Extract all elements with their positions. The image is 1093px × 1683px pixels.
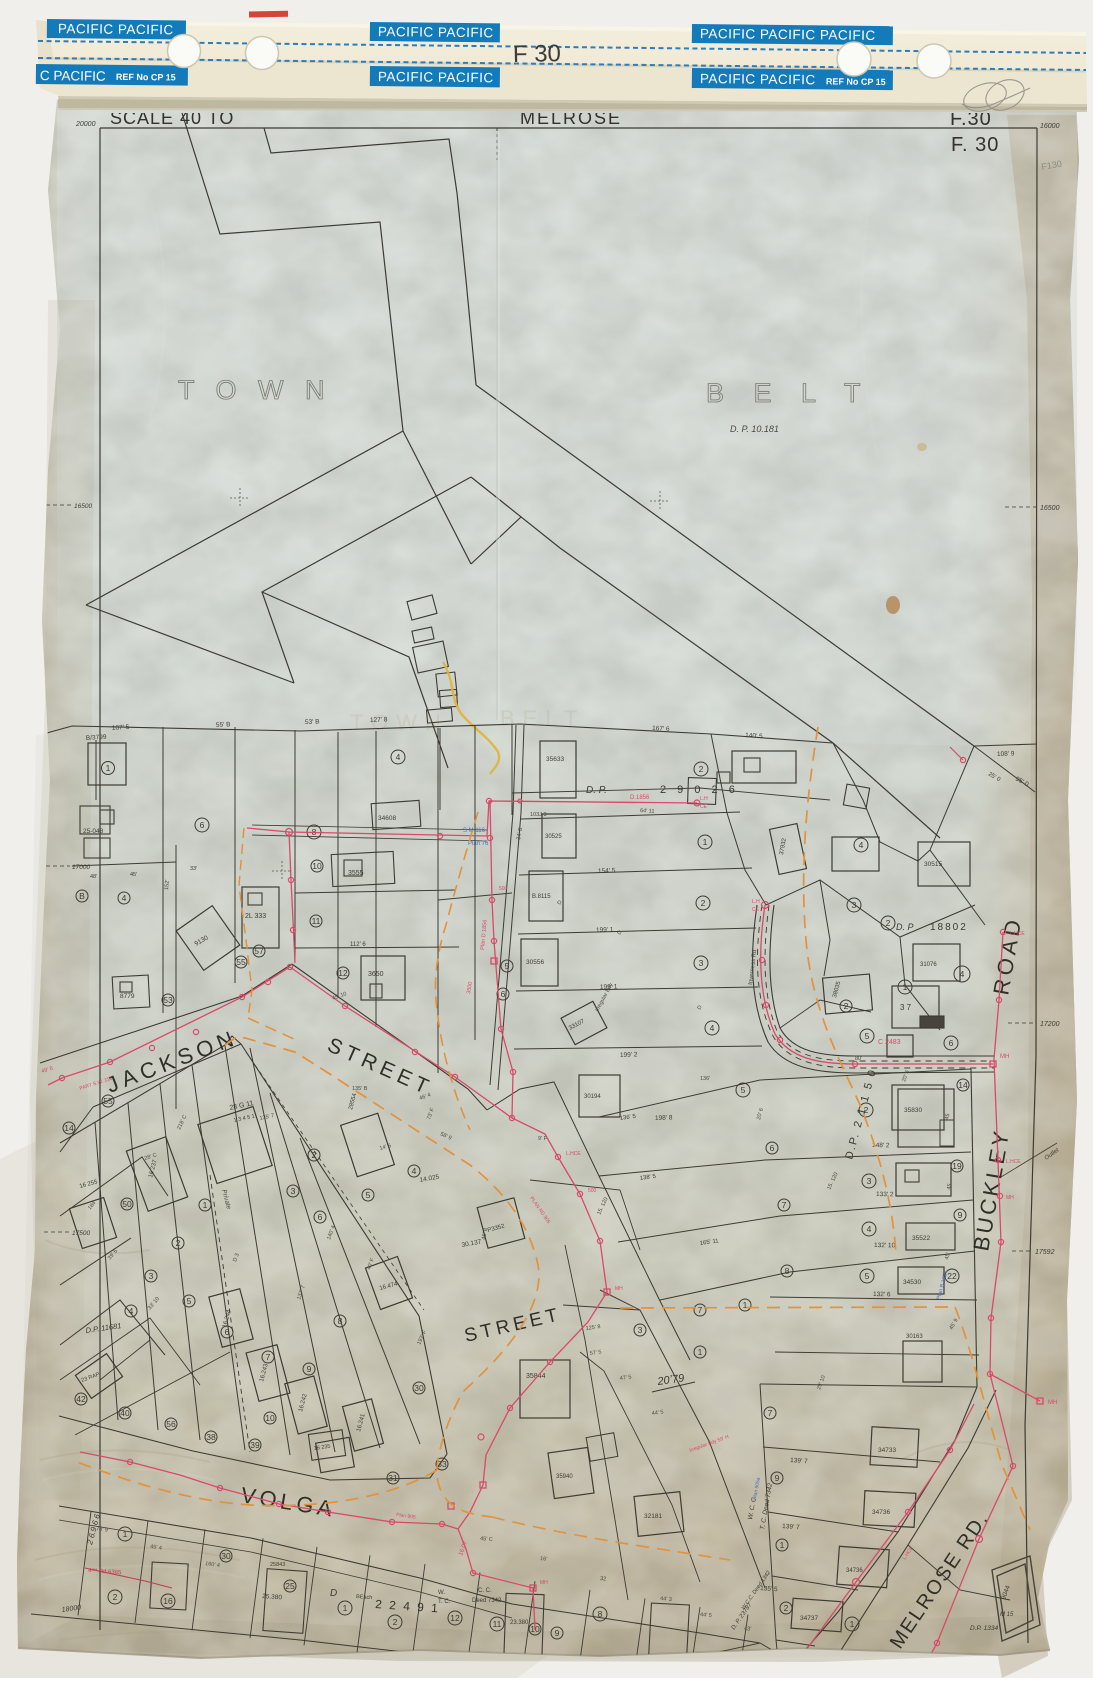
svg-text:5: 5 [865,1031,870,1041]
svg-text:3: 3 [149,1271,154,1281]
svg-text:T O W N: T O W N [178,375,332,405]
svg-text:132' 6: 132' 6 [873,1291,891,1298]
svg-text:D. P: D. P [896,922,914,932]
svg-text:8: 8 [338,1316,343,1326]
svg-text:PACIFIC PACIFIC: PACIFIC PACIFIC [378,69,494,85]
svg-text:8: 8 [598,1609,603,1619]
svg-text:B.8115: B.8115 [532,894,551,900]
svg-text:C PACIFIC: C PACIFIC [40,68,106,84]
svg-text:2: 2 [886,918,891,928]
svg-text:12: 12 [338,968,348,978]
svg-text:34733: 34733 [878,1447,896,1454]
svg-text:7: 7 [782,1200,787,1210]
svg-text:2: 2 [176,1238,181,1248]
svg-text:PACIFIC PACIFIC: PACIFIC PACIFIC [700,71,816,87]
svg-text:6: 6 [770,1143,775,1153]
svg-text:1: 1 [903,982,908,992]
svg-text:5: 5 [505,961,510,971]
svg-text:30194: 30194 [584,1094,601,1100]
svg-text:23.380: 23.380 [510,1620,529,1626]
svg-text:34736: 34736 [846,1568,863,1574]
svg-text:30163: 30163 [906,1334,923,1340]
svg-text:35830: 35830 [904,1107,922,1114]
svg-text:14: 14 [64,1123,74,1133]
svg-text:PACIFIC PACIFIC: PACIFIC PACIFIC [378,24,494,40]
svg-text:139' 7: 139' 7 [782,1523,800,1531]
svg-text:1: 1 [850,1619,855,1629]
svg-text:112' 6: 112' 6 [350,942,366,948]
svg-text:5: 5 [865,1271,870,1281]
svg-text:REF No CP 15: REF No CP 15 [826,76,886,87]
svg-text:167' 6: 167' 6 [652,725,670,733]
svg-text:16: 16 [163,1596,173,1606]
svg-text:2: 2 [864,1105,869,1115]
svg-text:139' 7: 139' 7 [790,1457,808,1465]
svg-text:F. 30: F. 30 [951,134,999,156]
svg-text:S M 116: S M 116 [463,828,486,834]
svg-text:64' 11: 64' 11 [640,808,655,815]
svg-text:1: 1 [780,1540,785,1550]
svg-text:1: 1 [343,1603,348,1613]
svg-text:L.HCE: L.HCE [1010,931,1025,937]
svg-text:35522: 35522 [912,1235,930,1242]
svg-text:11: 11 [312,916,321,926]
svg-text:9: 9 [307,1364,312,1374]
svg-text:4: 4 [859,840,864,850]
svg-text:4: 4 [396,752,401,762]
svg-text:6: 6 [318,1212,323,1222]
svg-text:16000: 16000 [1040,123,1060,130]
svg-text:11: 11 [493,1619,502,1629]
svg-text:17592: 17592 [1035,1249,1055,1256]
svg-text:1: 1 [106,763,111,773]
svg-text:12: 12 [450,1613,460,1623]
svg-text:L.H: L.H [700,796,708,802]
svg-text:3: 3 [699,958,704,968]
svg-text:7: 7 [768,1408,773,1418]
svg-text:500: 500 [588,1188,597,1194]
svg-text:3: 3 [867,1176,872,1186]
svg-text:1: 1 [743,1300,748,1310]
svg-text:4: 4 [960,969,965,979]
svg-text:4: 4 [122,893,127,903]
svg-text:REF No CP 15: REF No CP 15 [116,72,176,83]
svg-text:3555: 3555 [348,870,364,877]
svg-text:45' C: 45' C [480,1536,493,1543]
svg-text:35633: 35633 [546,756,564,763]
svg-text:2: 2 [113,1592,118,1602]
svg-text:B E L T: B E L T [706,378,872,408]
svg-text:MH: MH [1006,1195,1014,1201]
svg-text:10: 10 [312,861,322,871]
svg-text:5: 5 [741,1085,746,1095]
svg-text:B: B [79,891,85,901]
svg-text:16500: 16500 [1040,505,1060,512]
svg-text:2: 2 [393,1617,398,1627]
svg-text:500: 500 [499,886,508,892]
svg-text:L.HCE: L.HCE [1006,1159,1021,1165]
svg-text:14: 14 [958,1080,968,1090]
svg-text:38: 38 [206,1432,216,1442]
svg-text:5: 5 [187,1296,192,1306]
svg-text:C. C.: C. C. [478,1588,492,1594]
svg-text:4: 4 [710,1023,715,1033]
svg-text:2: 2 [312,1150,317,1160]
svg-text:25843: 25843 [270,1562,285,1568]
svg-text:B/3799: B/3799 [86,734,107,742]
svg-text:55' B: 55' B [216,721,231,729]
svg-text:133' 2: 133' 2 [876,1191,894,1198]
svg-text:19: 19 [952,1161,962,1171]
svg-text:32181: 32181 [644,1513,662,1520]
svg-text:5: 5 [366,1190,371,1200]
svg-text:4: 4 [129,1306,134,1316]
svg-text:PACIFIC PACIFIC: PACIFIC PACIFIC [58,21,174,37]
svg-text:W.: W. [438,1590,445,1596]
svg-text:43': 43' [744,1626,752,1633]
svg-text:2: 2 [844,1001,849,1011]
svg-text:20000: 20000 [75,121,96,128]
svg-text:39: 39 [250,1440,260,1450]
svg-text:3650: 3650 [368,971,384,978]
svg-text:9: 9 [775,1473,780,1483]
svg-text:132' 10: 132' 10 [874,1242,896,1249]
svg-text:2: 2 [784,1603,789,1613]
svg-text:6: 6 [949,1038,954,1048]
svg-text:135' B: 135' B [352,1086,368,1092]
svg-text:3: 3 [852,900,857,910]
svg-text:F 30: F 30 [513,40,561,68]
svg-text:1: 1 [698,1347,703,1357]
svg-text:136': 136' [700,1076,710,1082]
svg-text:MH: MH [615,1286,623,1292]
svg-text:BEach: BEach [356,1594,373,1601]
svg-text:3 7: 3 7 [900,1003,912,1012]
svg-text:9: 9 [958,1210,963,1220]
svg-text:L.HCE: L.HCE [566,1151,581,1157]
svg-text:8: 8 [785,1266,790,1276]
svg-text:198' 8: 198' 8 [655,1114,673,1122]
svg-text:MH: MH [1048,1400,1057,1406]
svg-text:D. P. 10.181: D. P. 10.181 [730,424,779,434]
svg-text:9' F: 9' F [538,1136,548,1142]
svg-text:127' 8: 127' 8 [370,716,388,724]
svg-text:7: 7 [698,1305,703,1315]
svg-text:T. C.: T. C. [438,1599,451,1605]
svg-text:25-048: 25-048 [83,828,104,835]
svg-text:17200: 17200 [1040,1021,1060,1028]
svg-text:32: 32 [600,1576,607,1583]
svg-text:33': 33' [190,866,197,872]
svg-text:3: 3 [638,1325,643,1335]
svg-text:44' 3: 44' 3 [660,1596,672,1603]
svg-text:199' 1: 199' 1 [596,926,614,934]
svg-text:53' B: 53' B [305,718,320,726]
svg-text:30515: 30515 [924,861,942,868]
svg-text:Deed 7342: Deed 7342 [472,1598,502,1604]
svg-text:30: 30 [414,1383,424,1393]
svg-text:Plan 76: Plan 76 [468,841,489,847]
svg-text:2 9 0 2 6: 2 9 0 2 6 [660,784,739,796]
svg-text:34608: 34608 [378,815,396,822]
svg-text:1: 1 [703,837,708,847]
svg-text:4: 4 [867,1224,872,1234]
svg-text:48': 48' [90,874,97,880]
svg-text:34737: 34737 [800,1615,818,1622]
svg-text:152': 152' [164,879,171,890]
svg-text:140' 5: 140' 5 [745,732,763,740]
svg-text:4: 4 [412,1166,417,1176]
svg-text:16': 16' [540,1556,548,1563]
svg-text:108' 9: 108' 9 [997,750,1015,758]
svg-text:80': 80' [855,1056,862,1062]
svg-text:44' 5: 44' 5 [700,1612,712,1619]
svg-text:107' 5: 107' 5 [112,724,130,732]
svg-text:53: 53 [163,995,173,1005]
svg-text:3: 3 [291,1186,296,1196]
svg-text:30: 30 [221,1551,231,1561]
svg-text:17500: 17500 [72,1230,90,1237]
svg-text:42: 42 [76,1394,86,1404]
svg-text:D.P. 1334: D.P. 1334 [970,1625,998,1632]
svg-text:2L 333: 2L 333 [245,913,266,920]
svg-text:154' 5: 154' 5 [598,867,616,875]
svg-text:PACIFIC PACIFIC PACIFIC: PACIFIC PACIFIC PACIFIC [700,26,876,43]
svg-text:L.H: L.H [752,899,760,905]
svg-text:D.1856: D.1856 [630,795,650,801]
svg-text:2: 2 [699,764,704,774]
svg-text:MH: MH [1000,1054,1009,1060]
svg-text:18802: 18802 [930,922,968,933]
svg-text:1: 1 [123,1529,128,1539]
svg-text:CE: CE [752,907,760,913]
svg-text:6: 6 [200,820,205,830]
svg-text:30525: 30525 [545,834,562,840]
svg-text:6: 6 [501,989,506,999]
svg-text:31076: 31076 [920,962,937,968]
svg-text:M 15: M 15 [1000,1612,1014,1618]
svg-text:56: 56 [166,1419,176,1429]
svg-text:16500: 16500 [74,503,92,510]
svg-text:35940: 35940 [556,1474,573,1480]
svg-text:2: 2 [701,898,706,908]
svg-text:1: 1 [203,1200,208,1210]
svg-text:C 2483: C 2483 [878,1039,901,1046]
svg-text:9: 9 [555,1628,560,1638]
svg-text:25: 25 [285,1581,295,1591]
svg-text:10: 10 [265,1413,275,1423]
svg-text:34736: 34736 [872,1509,890,1516]
svg-text:34530: 34530 [903,1279,921,1286]
svg-text:30556: 30556 [526,959,544,966]
svg-text:199' 2: 199' 2 [620,1051,638,1059]
svg-text:7: 7 [266,1352,271,1362]
svg-text:45': 45' [130,872,137,878]
svg-text:CE: CE [700,804,708,810]
svg-text:50: 50 [122,1199,132,1209]
svg-text:55: 55 [236,957,246,967]
svg-text:8779: 8779 [120,993,135,1000]
svg-text:57: 57 [254,946,264,956]
svg-text:40: 40 [120,1408,130,1418]
svg-text:103J 3: 103J 3 [530,812,547,818]
svg-text:MH: MH [540,1580,548,1586]
svg-text:31: 31 [388,1473,398,1483]
svg-text:D: D [330,1588,337,1599]
